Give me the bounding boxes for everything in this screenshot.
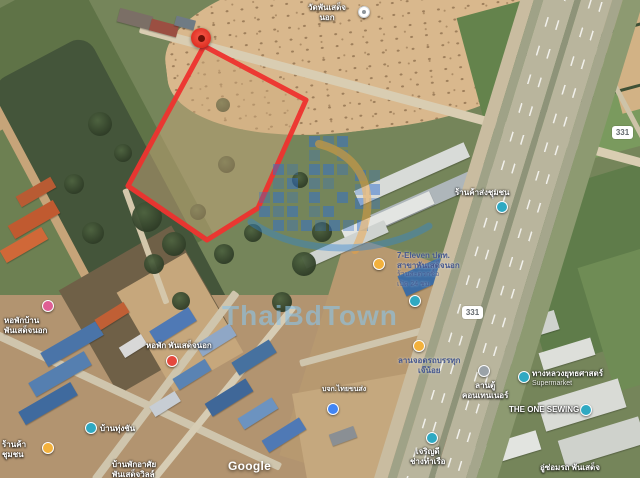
route-shield-331: 331 [612,126,633,139]
boat-repair-poi-icon[interactable] [426,432,438,444]
garage-label[interactable]: อู่ซ่อมรถ พันเสด็จ [540,463,600,473]
freight-label[interactable]: บจก.ไทยขนส่ง [322,385,366,395]
wholesale-label[interactable]: ร้านค้าส่งชุมชน [455,188,510,198]
temple-poi-icon[interactable] [358,6,370,18]
tree [218,156,235,173]
tree [144,254,164,274]
thung-chan-poi-icon[interactable] [85,422,97,434]
tree [216,98,230,112]
thung-chan-label[interactable]: บ้านทุ่งชัน [100,424,135,434]
supermarket-label[interactable]: ทางหลวงยุทธศาสตร์Supermarket [532,369,603,388]
truck-yard-poi-icon[interactable] [413,340,425,352]
building-roof [117,8,153,30]
tree [272,292,292,312]
satellite-map-canvas[interactable]: 331 331 วัดพันเสด็จนอก ร้านค้าส่งชุมชน 7… [0,0,640,478]
seven-eleven-poi-icon[interactable] [373,258,385,270]
tree [292,252,316,276]
freight-poi-icon[interactable] [327,403,339,415]
seven-eleven-label[interactable]: 7-Eleven ปตท.สาขาพันเสด็จนอก ร้านสะดวกซื… [397,251,460,289]
container-yard-label[interactable]: ลานตู้คอนเทนเนอร์ [462,381,508,400]
community-store-label[interactable]: ร้านค้าชุมชน [2,440,26,459]
dorm-central-label[interactable]: หอพัก พันเสด็จนอก [146,341,212,351]
tree [162,232,186,256]
boat-repair-label[interactable]: เจริญดีช่างทำเรือ [410,447,445,466]
tree [132,202,162,232]
container-poi-icon[interactable] [478,365,490,377]
truck-yard-label[interactable]: ลานจอดรถบรรทุกเจ๊น้อย [398,356,460,375]
dorm-west-poi-icon[interactable] [42,300,54,312]
google-attribution[interactable]: Google [228,459,271,473]
tree [172,292,190,310]
housing-project-label[interactable]: บ้านพักอาศัยพันเสด็จวิลล์ [112,460,156,478]
route-shield-331: 331 [462,306,483,319]
supermarket-poi-icon[interactable] [518,371,530,383]
the-one-poi-icon[interactable] [580,404,592,416]
tree [114,144,132,162]
dropped-pin-marker[interactable] [191,28,211,48]
tree [64,174,84,194]
temple-label[interactable]: วัดพันเสด็จนอก [298,3,356,22]
wholesale-poi-icon[interactable] [496,201,508,213]
dorm-west-label[interactable]: หอพักบ้านพันเสด็จนอก [4,316,47,335]
tree [190,204,206,220]
store-poi-icon[interactable] [42,442,54,454]
tree [244,224,262,242]
tree [214,244,234,264]
plaza-poi-icon[interactable] [409,295,421,307]
tree [312,222,332,242]
tree [88,112,112,136]
dorm-central-poi-icon[interactable] [166,355,178,367]
the-one-label[interactable]: THE ONE SEWING [509,405,579,415]
tree [292,172,308,188]
tree [82,222,104,244]
